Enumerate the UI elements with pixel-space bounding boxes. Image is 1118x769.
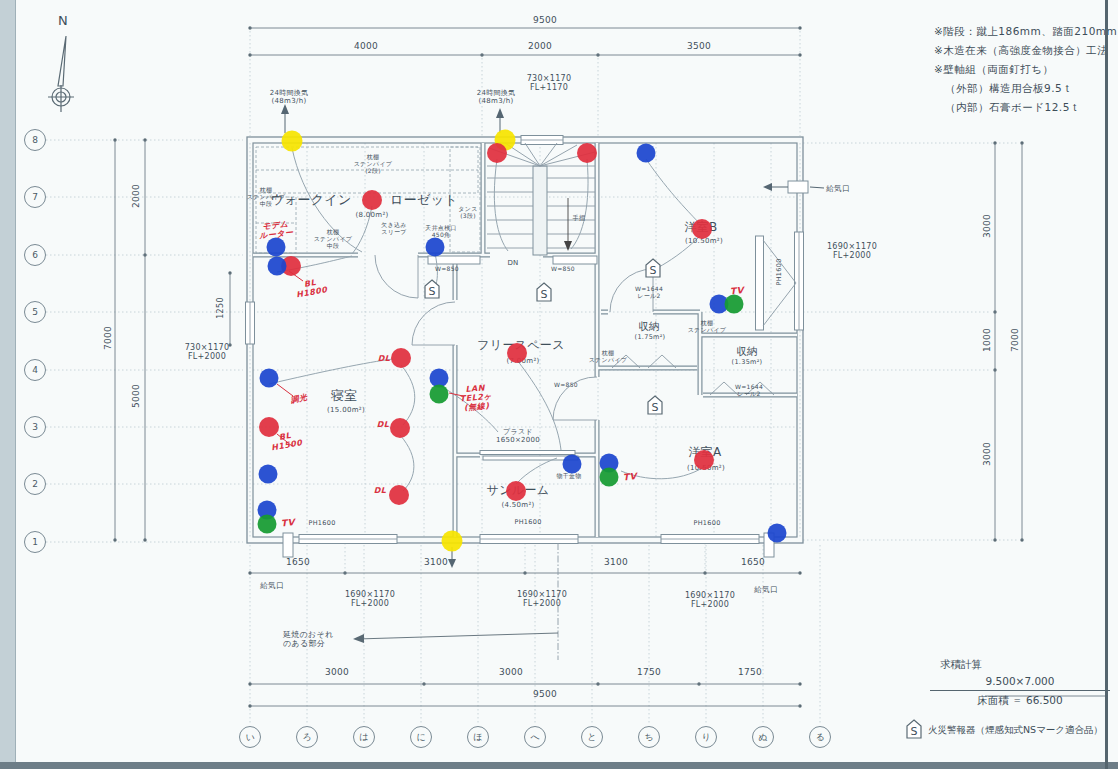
dim-bm-3100-l: 3100	[424, 557, 448, 567]
outlet-mark	[260, 369, 279, 388]
dim-b-3000-m: 3000	[499, 667, 523, 677]
dn: DN	[507, 259, 518, 267]
note-line: ※木造在来（高強度金物接合）工法	[934, 41, 1117, 60]
fire-alarm-legend: S 火災警報器（煙感知式NSマーク適合品）	[906, 719, 1103, 741]
svg-text:S: S	[429, 285, 436, 298]
svg-text:S: S	[650, 264, 657, 277]
tansu: タンス (3段)	[458, 206, 477, 220]
dim-top-2000: 2000	[528, 41, 552, 51]
dim-b-1750-r: 1750	[738, 667, 762, 677]
dim-bm-1650-r: 1650	[741, 557, 765, 567]
light-mark	[391, 348, 411, 368]
note-line: ※壁軸組（両面釘打ち）	[934, 60, 1117, 79]
dim-left-7000: 7000	[103, 326, 113, 350]
north-compass-icon	[48, 36, 74, 112]
shelf-1: 枕棚 ステンパイプ (2段)	[354, 154, 393, 175]
tesuri: 手摺	[573, 215, 586, 222]
win-right: 1690×1170 FL+2000	[827, 242, 877, 260]
dim-top-4000: 4000	[354, 41, 378, 51]
light-mark	[362, 190, 382, 210]
rail-a: W=1644 レール2	[635, 286, 663, 300]
counter-c: W=850	[554, 382, 578, 389]
dim-left-2000: 2000	[131, 184, 141, 208]
counter-b: W=850	[551, 266, 575, 273]
dim-b-3000-l: 3000	[325, 667, 349, 677]
kyukiko-bl: 給気口	[260, 582, 283, 591]
grid-row-3: 3	[24, 416, 46, 438]
outlet-mark	[637, 144, 656, 163]
fire-alarm-symbol: S	[647, 395, 663, 419]
light-mark	[389, 485, 409, 505]
tenkenko: 天井点検口 450角	[425, 225, 457, 239]
area-shuno-2: (1.35m²)	[732, 359, 763, 366]
dim-left-5000: 5000	[131, 384, 141, 408]
grid-col-10: ぬ	[752, 726, 774, 748]
tv-lan-mark	[258, 515, 277, 534]
light-mark	[692, 219, 712, 239]
room-shuno-1: 収納	[638, 320, 660, 332]
scan-edge-left	[0, 0, 16, 769]
dim-right-3000a: 3000	[982, 214, 992, 238]
hand-dl-3: DL	[374, 486, 387, 495]
light-mark	[259, 417, 279, 437]
dim-top-9500: 9500	[533, 15, 557, 25]
area-shinshitsu: (15.00m²)	[327, 406, 365, 414]
grid-col-2: ろ	[296, 726, 318, 748]
svg-text:S: S	[652, 401, 659, 414]
vent-fan-mark	[282, 131, 303, 152]
outlet-mark	[426, 238, 445, 257]
fire-alarm-legend-label: 火災警報器（煙感知式NSマーク適合品）	[928, 724, 1103, 737]
light-mark	[390, 418, 410, 438]
win-b1: 1690×1170 FL+2000	[345, 590, 395, 608]
construction-notes: ※階段：蹴上186mm、踏面210mm※木造在来（高強度金物接合）工法※壁軸組（…	[934, 22, 1117, 117]
outlet-mark	[768, 524, 787, 543]
grid-row-4: 4	[24, 359, 46, 381]
ph-b2: PH1600	[514, 519, 541, 526]
area-wic: (8.00m²)	[355, 211, 388, 219]
grid-col-11: る	[809, 726, 831, 748]
rail-b: W=1644 レール2	[735, 384, 763, 398]
hand-dl-2: DL	[377, 420, 390, 429]
dim-left-1250: 1250	[216, 297, 225, 319]
fire-alarm-symbol: S	[424, 279, 440, 303]
vent-24h-l: 24時間換気 (48m3/h)	[270, 89, 309, 105]
compass-label: N	[58, 14, 68, 29]
outlet-mark	[563, 455, 582, 474]
ph-right: PH1600	[776, 258, 783, 285]
note-line: （内部）石膏ボード12.5ｔ	[934, 98, 1117, 117]
vent-24h-r: 24時間換気 (48m3/h)	[477, 89, 516, 105]
shelf-3: 枕棚 ステンパイプ 中段	[314, 229, 353, 250]
floor-plan-sheet: ※階段：蹴上186mm、踏面210mm※木造在来（高強度金物接合）工法※壁軸組（…	[0, 0, 1118, 769]
grid-row-5: 5	[24, 301, 46, 323]
shelf-2: 枕棚 ステンパイプ 中段	[247, 187, 286, 208]
room-shinshitsu: 寝室	[331, 389, 358, 404]
fire-alarm-symbol: S	[645, 258, 661, 282]
grid-col-9: り	[695, 726, 717, 748]
hand-tv-2: TV	[623, 471, 638, 483]
ph-b3: PH1600	[693, 520, 720, 527]
outlet-mark	[267, 238, 286, 257]
grid-col-4: に	[410, 726, 432, 748]
tv-lan-mark	[600, 468, 619, 487]
fire-alarm-icon: S	[906, 719, 922, 741]
win-b3: 1690×1170 FL+2000	[685, 591, 735, 609]
annotations	[281, 104, 824, 660]
dim-right-3000b: 3000	[982, 442, 992, 466]
scan-edge-bottom	[0, 762, 1118, 769]
grid-col-3: は	[353, 726, 375, 748]
grid-row-2: 2	[24, 473, 46, 495]
area-sunroom: (4.50m²)	[501, 501, 534, 509]
win-b2: 1690×1170 FL+2000	[517, 590, 567, 608]
light-mark	[506, 481, 526, 501]
shelf-5: 枕棚 ステンパイプ	[688, 320, 727, 334]
win-top: 730×1170 FL+1170	[527, 74, 572, 92]
light-mark	[577, 143, 597, 163]
svg-text:S: S	[911, 725, 918, 738]
counter-a: W=850	[435, 266, 459, 273]
area-shuno-1: (1.75m²)	[635, 334, 666, 341]
kakikomi: 欠き込み スリーブ	[381, 222, 407, 236]
area-calc-formula: 9.500×7.000	[930, 675, 1110, 687]
enshou: 延焼のおそれ のある部分	[283, 630, 334, 648]
grid-col-1: い	[239, 726, 261, 748]
kyukiko-tr: 給気口	[826, 185, 849, 194]
dim-top-3500: 3500	[687, 41, 711, 51]
light-mark	[694, 450, 714, 470]
hand-tv-3: TV	[281, 517, 296, 529]
dim-b-9500: 9500	[533, 689, 557, 699]
room-wic-2: ローゼット	[390, 193, 458, 208]
hand-dl-1: DL	[378, 354, 391, 363]
grid-col-5: ほ	[467, 726, 489, 748]
monohoshi: 物干金物	[556, 473, 581, 480]
outlet-mark	[268, 257, 287, 276]
tv-lan-mark	[725, 295, 744, 314]
dim-right-1000: 1000	[982, 328, 992, 352]
grid-row-6: 6	[24, 244, 46, 266]
room-shuno-2: 収納	[736, 345, 758, 357]
dim-right-7000: 7000	[1010, 328, 1020, 352]
scan-edge-right	[1105, 0, 1108, 769]
dim-b-1750-l: 1750	[637, 667, 661, 677]
ph-b1: PH1600	[308, 520, 335, 527]
dim-bm-1650-l: 1650	[286, 557, 310, 567]
stair-down-arrow	[564, 241, 572, 251]
outlet-mark	[259, 465, 278, 484]
area-calculation: 求積計算 9.500×7.000 床面積 ＝ 66.500	[930, 658, 1110, 708]
grid-col-7: と	[581, 726, 603, 748]
door-sunroom: プラスド 1650×2000	[496, 428, 540, 444]
dim-bm-3100-r: 3100	[604, 557, 628, 567]
grid-row-7: 7	[24, 186, 46, 208]
kyukiko-br: 給気口	[754, 586, 777, 595]
light-mark	[487, 143, 507, 163]
note-line: （外部）構造用合板9.5ｔ	[934, 79, 1117, 98]
area-calc-result: 床面積 ＝ 66.500	[930, 690, 1110, 708]
area-calc-title: 求積計算	[930, 658, 1110, 672]
fire-alarm-symbol: S	[536, 282, 552, 306]
tv-lan-mark	[430, 385, 449, 404]
svg-text:S: S	[541, 288, 548, 301]
win-left: 730×1170 FL+2000	[185, 343, 230, 361]
grid-row-8: 8	[24, 129, 46, 151]
shelf-4: 枕棚 ステンパイプ	[589, 350, 628, 364]
grid-row-1: 1	[24, 531, 46, 553]
vent-fan-mark	[442, 531, 463, 552]
grid-col-6: へ	[524, 726, 546, 748]
light-mark	[507, 343, 527, 363]
grid-col-8: ち	[638, 726, 660, 748]
note-line: ※階段：蹴上186mm、踏面210mm	[934, 22, 1117, 41]
hand-lan: LAN TEL2ヶ (無線)	[459, 383, 494, 413]
